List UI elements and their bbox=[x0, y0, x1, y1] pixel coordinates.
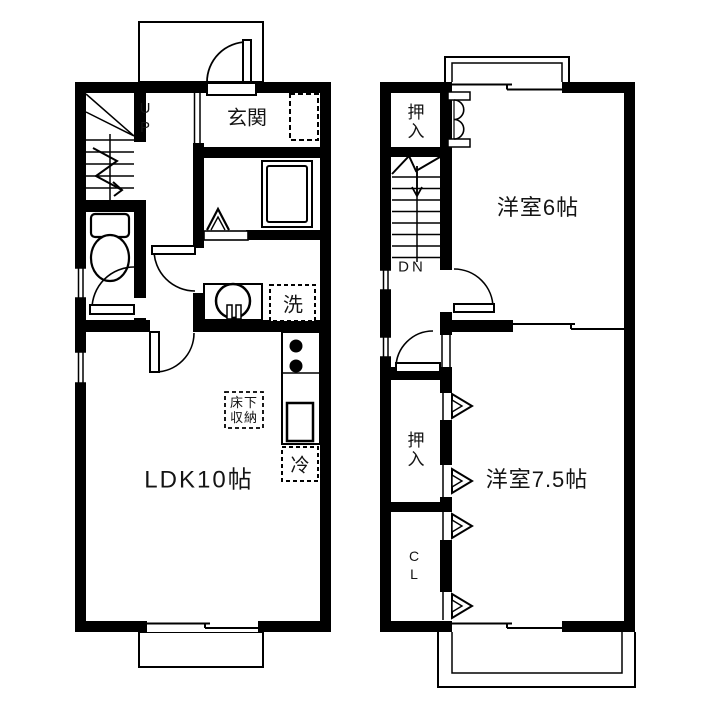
closet-top-label: 押入 bbox=[402, 103, 427, 141]
stairs-1f-icon bbox=[86, 94, 134, 200]
sliding-arrow-icon bbox=[452, 594, 472, 618]
kitchen-counter bbox=[282, 332, 320, 444]
sliding-window-icon bbox=[452, 621, 562, 632]
ldk-door-icon bbox=[150, 332, 194, 372]
genkan-step-line bbox=[195, 93, 201, 143]
washroom-door-icon bbox=[152, 246, 195, 291]
window-icon bbox=[75, 352, 86, 383]
sliding-arrow-icon bbox=[452, 394, 472, 418]
bath-folding-door-icon bbox=[204, 209, 248, 240]
balcony-2f-bottom bbox=[438, 632, 635, 687]
room75-door-icon bbox=[396, 331, 440, 372]
ldk-room-label: LDK10帖 bbox=[144, 460, 253, 495]
bathtub-icon bbox=[262, 161, 312, 227]
sliding-window-icon bbox=[147, 621, 258, 632]
floor-plan: UP 玄関 洗 床下収納 冷 LDK10帖 押入 DN 洋室6帖 押入 CL 洋… bbox=[0, 0, 709, 709]
sliding-partition-icon bbox=[513, 320, 624, 332]
washbasin-icon bbox=[204, 284, 262, 320]
sliding-arrow-icon bbox=[452, 469, 472, 493]
room6-door-icon bbox=[454, 269, 494, 312]
terrace-1f bbox=[139, 632, 263, 667]
sliding-arrow-icon bbox=[452, 514, 472, 538]
window-icon bbox=[75, 268, 86, 298]
window-icon bbox=[380, 337, 391, 357]
entrance-door-icon bbox=[207, 40, 256, 95]
toilet-icon bbox=[91, 214, 129, 281]
genkan-label: 玄関 bbox=[227, 102, 267, 131]
up-label: UP bbox=[137, 100, 154, 138]
shoe-cabinet bbox=[290, 94, 318, 140]
window-icon bbox=[380, 270, 391, 290]
floor-plan-drawing bbox=[0, 0, 709, 709]
laundry-label: 洗 bbox=[283, 289, 303, 318]
stairs-2f-icon bbox=[392, 156, 440, 262]
room-7-5-label: 洋室7.5帖 bbox=[486, 462, 589, 494]
closet-bottom-label: 押入 bbox=[402, 431, 427, 469]
dn-label: DN bbox=[398, 259, 426, 276]
cl-label: CL bbox=[406, 548, 422, 584]
balcony-2f-top bbox=[445, 57, 569, 82]
room-6-label: 洋室6帖 bbox=[497, 190, 579, 222]
refrigerator-label: 冷 bbox=[290, 451, 309, 478]
floor-storage-label: 床下収納 bbox=[229, 395, 259, 425]
kitchen-sink-icon bbox=[287, 403, 313, 441]
